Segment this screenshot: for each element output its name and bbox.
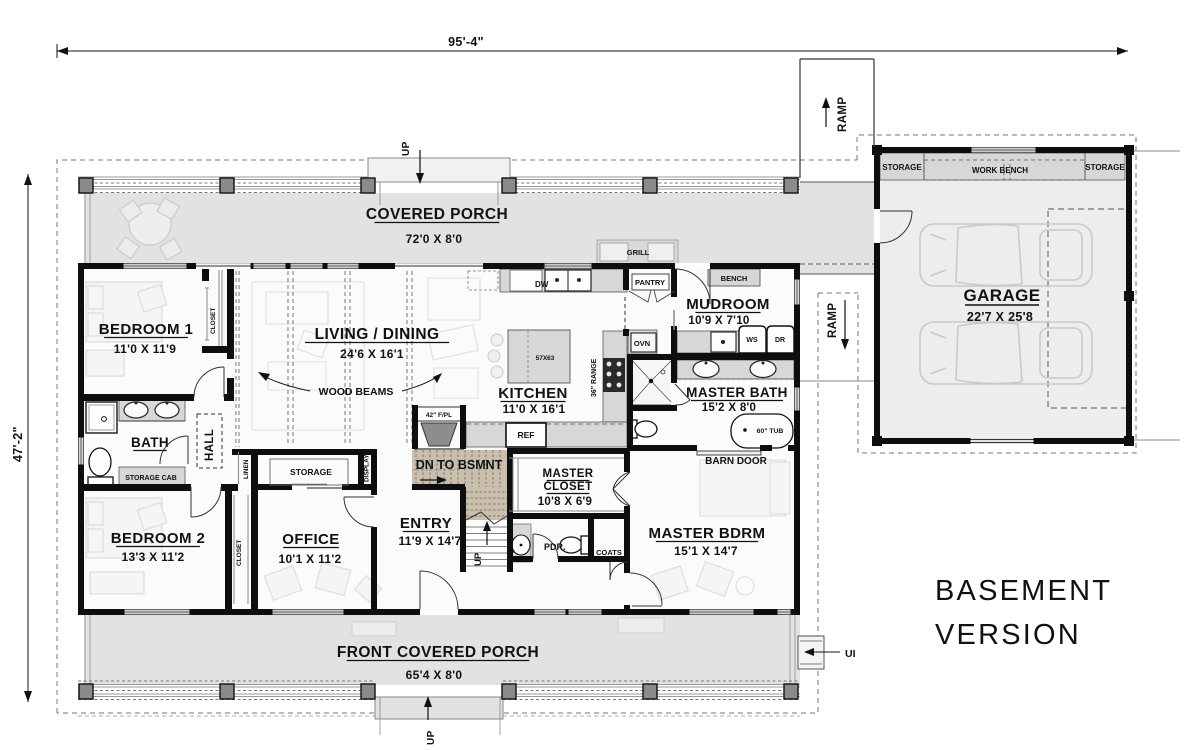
svg-text:GRILL: GRILL: [627, 248, 650, 257]
svg-text:VERSION: VERSION: [935, 619, 1081, 651]
svg-text:UP: UP: [426, 730, 437, 745]
svg-text:RAMP: RAMP: [837, 97, 849, 132]
svg-text:MUDROOM: MUDROOM: [686, 296, 770, 313]
svg-text:22'7 X 25'8: 22'7 X 25'8: [967, 310, 1033, 324]
svg-text:FRONT COVERED PORCH: FRONT COVERED PORCH: [337, 644, 539, 661]
svg-text:BASEMENT: BASEMENT: [935, 575, 1112, 607]
svg-text:STORAGE: STORAGE: [882, 163, 922, 172]
svg-text:OVN: OVN: [634, 339, 650, 348]
svg-text:CLOSET: CLOSET: [236, 540, 243, 566]
svg-text:COATS: COATS: [596, 548, 622, 557]
svg-text:10'8 X 6'9: 10'8 X 6'9: [538, 496, 593, 508]
svg-text:STORAGE: STORAGE: [1085, 163, 1125, 172]
svg-text:42" F/PL: 42" F/PL: [426, 412, 452, 419]
svg-text:BEDROOM 2: BEDROOM 2: [111, 530, 205, 547]
svg-text:47'-2": 47'-2": [11, 426, 25, 462]
svg-text:STORAGE: STORAGE: [290, 467, 332, 477]
svg-text:24'6 X 16'1: 24'6 X 16'1: [340, 347, 404, 361]
svg-text:MASTER BDRM: MASTER BDRM: [649, 525, 766, 542]
svg-text:COVERED PORCH: COVERED PORCH: [366, 206, 508, 223]
svg-text:STORAGE CAB: STORAGE CAB: [125, 475, 177, 482]
svg-text:LIVING / DINING: LIVING / DINING: [315, 326, 440, 343]
svg-text:GARAGE: GARAGE: [963, 286, 1040, 305]
svg-text:REF: REF: [518, 430, 535, 440]
svg-text:DN TO BSMNT: DN TO BSMNT: [416, 458, 503, 472]
svg-text:72'0 X 8'0: 72'0 X 8'0: [406, 232, 463, 246]
svg-text:KITCHEN: KITCHEN: [498, 385, 567, 402]
svg-text:MASTER BATH: MASTER BATH: [686, 385, 788, 400]
svg-text:UP: UP: [401, 141, 412, 156]
svg-text:11'9 X 14'7: 11'9 X 14'7: [398, 534, 461, 548]
svg-text:MASTER: MASTER: [543, 468, 594, 480]
svg-text:60" TUB: 60" TUB: [757, 428, 784, 435]
svg-text:15'2 X 8'0: 15'2 X 8'0: [702, 402, 757, 414]
svg-text:BENCH: BENCH: [721, 274, 748, 283]
svg-text:HALL: HALL: [204, 429, 216, 461]
svg-text:UP: UP: [473, 552, 484, 566]
svg-text:10'1 X 11'2: 10'1 X 11'2: [278, 552, 341, 566]
svg-text:11'0 X 16'1: 11'0 X 16'1: [502, 402, 565, 416]
svg-text:DR: DR: [775, 337, 785, 344]
svg-text:ENTRY: ENTRY: [400, 515, 452, 532]
svg-text:BARN DOOR: BARN DOOR: [705, 456, 767, 467]
svg-text:RAMP: RAMP: [827, 303, 839, 338]
svg-text:WORK BENCH: WORK BENCH: [972, 166, 1028, 175]
svg-text:15'1 X 14'7: 15'1 X 14'7: [674, 544, 738, 558]
svg-text:95'-4": 95'-4": [448, 35, 484, 49]
svg-text:OFFICE: OFFICE: [282, 531, 339, 548]
svg-text:DISPLAY: DISPLAY: [364, 454, 371, 482]
svg-text:UI: UI: [845, 648, 856, 660]
svg-text:WS: WS: [746, 337, 758, 344]
svg-text:CLOSET: CLOSET: [210, 308, 217, 334]
svg-text:36" RANGE: 36" RANGE: [591, 358, 598, 397]
svg-text:PANTRY: PANTRY: [635, 278, 665, 287]
svg-text:BATH: BATH: [131, 435, 169, 450]
svg-text:CLOSET: CLOSET: [543, 481, 592, 493]
svg-text:57X63: 57X63: [536, 355, 555, 362]
svg-text:11'0 X 11'9: 11'0 X 11'9: [114, 342, 176, 356]
svg-text:DW: DW: [535, 280, 549, 289]
svg-text:13'3 X 11'2: 13'3 X 11'2: [121, 550, 184, 564]
svg-text:65'4 X 8'0: 65'4 X 8'0: [406, 668, 463, 682]
svg-text:LINEN: LINEN: [243, 459, 250, 479]
svg-text:WOOD BEAMS: WOOD BEAMS: [319, 386, 394, 398]
svg-text:10'9 X 7'10: 10'9 X 7'10: [688, 315, 749, 327]
svg-text:PDR.: PDR.: [544, 542, 566, 552]
svg-text:BEDROOM 1: BEDROOM 1: [99, 321, 193, 338]
